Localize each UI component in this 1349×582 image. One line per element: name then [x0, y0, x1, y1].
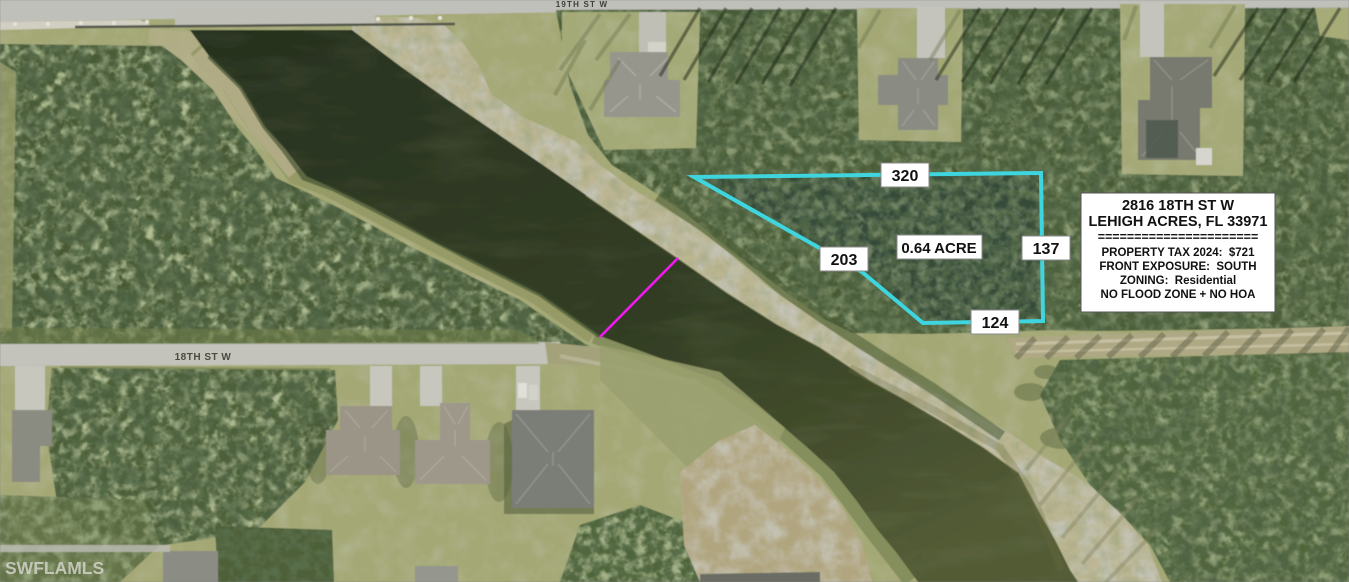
- svg-text:137: 137: [1033, 241, 1060, 258]
- svg-text:ZONING: Residential: ZONING: Residential: [1120, 275, 1236, 287]
- svg-text:NO FLOOD ZONE + NO HOA: NO FLOOD ZONE + NO HOA: [1101, 289, 1256, 301]
- svg-text:SWFLAMLS: SWFLAMLS: [5, 558, 104, 578]
- svg-text:203: 203: [831, 252, 858, 269]
- svg-text:======================: ======================: [1098, 230, 1259, 244]
- svg-text:LEHIGH ACRES, FL 33971: LEHIGH ACRES, FL 33971: [1089, 214, 1268, 230]
- svg-text:320: 320: [892, 168, 919, 185]
- svg-text:PROPERTY TAX 2024: $721: PROPERTY TAX 2024: $721: [1102, 247, 1256, 259]
- svg-text:0.64 ACRE: 0.64 ACRE: [901, 240, 976, 257]
- svg-text:124: 124: [982, 315, 1009, 332]
- svg-text:18TH ST W: 18TH ST W: [175, 352, 232, 363]
- svg-text:19TH ST W: 19TH ST W: [556, 0, 609, 9]
- svg-text:FRONT EXPOSURE: SOUTH: FRONT EXPOSURE: SOUTH: [1099, 261, 1256, 273]
- svg-text:2816 18TH ST W: 2816 18TH ST W: [1122, 198, 1234, 214]
